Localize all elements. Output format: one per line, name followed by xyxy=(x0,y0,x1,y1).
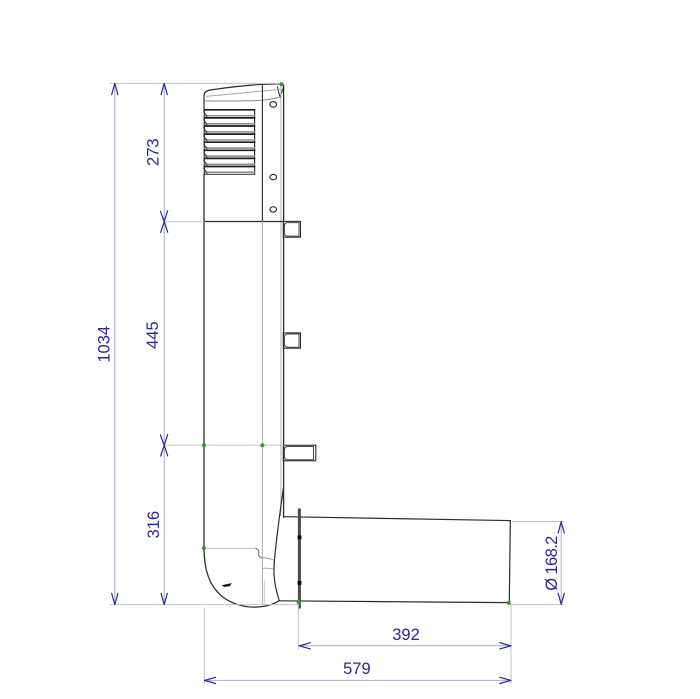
svg-text:316: 316 xyxy=(145,511,163,539)
svg-text:1034: 1034 xyxy=(96,326,114,363)
svg-text:273: 273 xyxy=(145,138,163,166)
svg-text:392: 392 xyxy=(392,626,420,644)
svg-text:Ø 168.2: Ø 168.2 xyxy=(543,536,561,591)
svg-text:579: 579 xyxy=(343,660,371,678)
svg-text:445: 445 xyxy=(144,321,162,349)
